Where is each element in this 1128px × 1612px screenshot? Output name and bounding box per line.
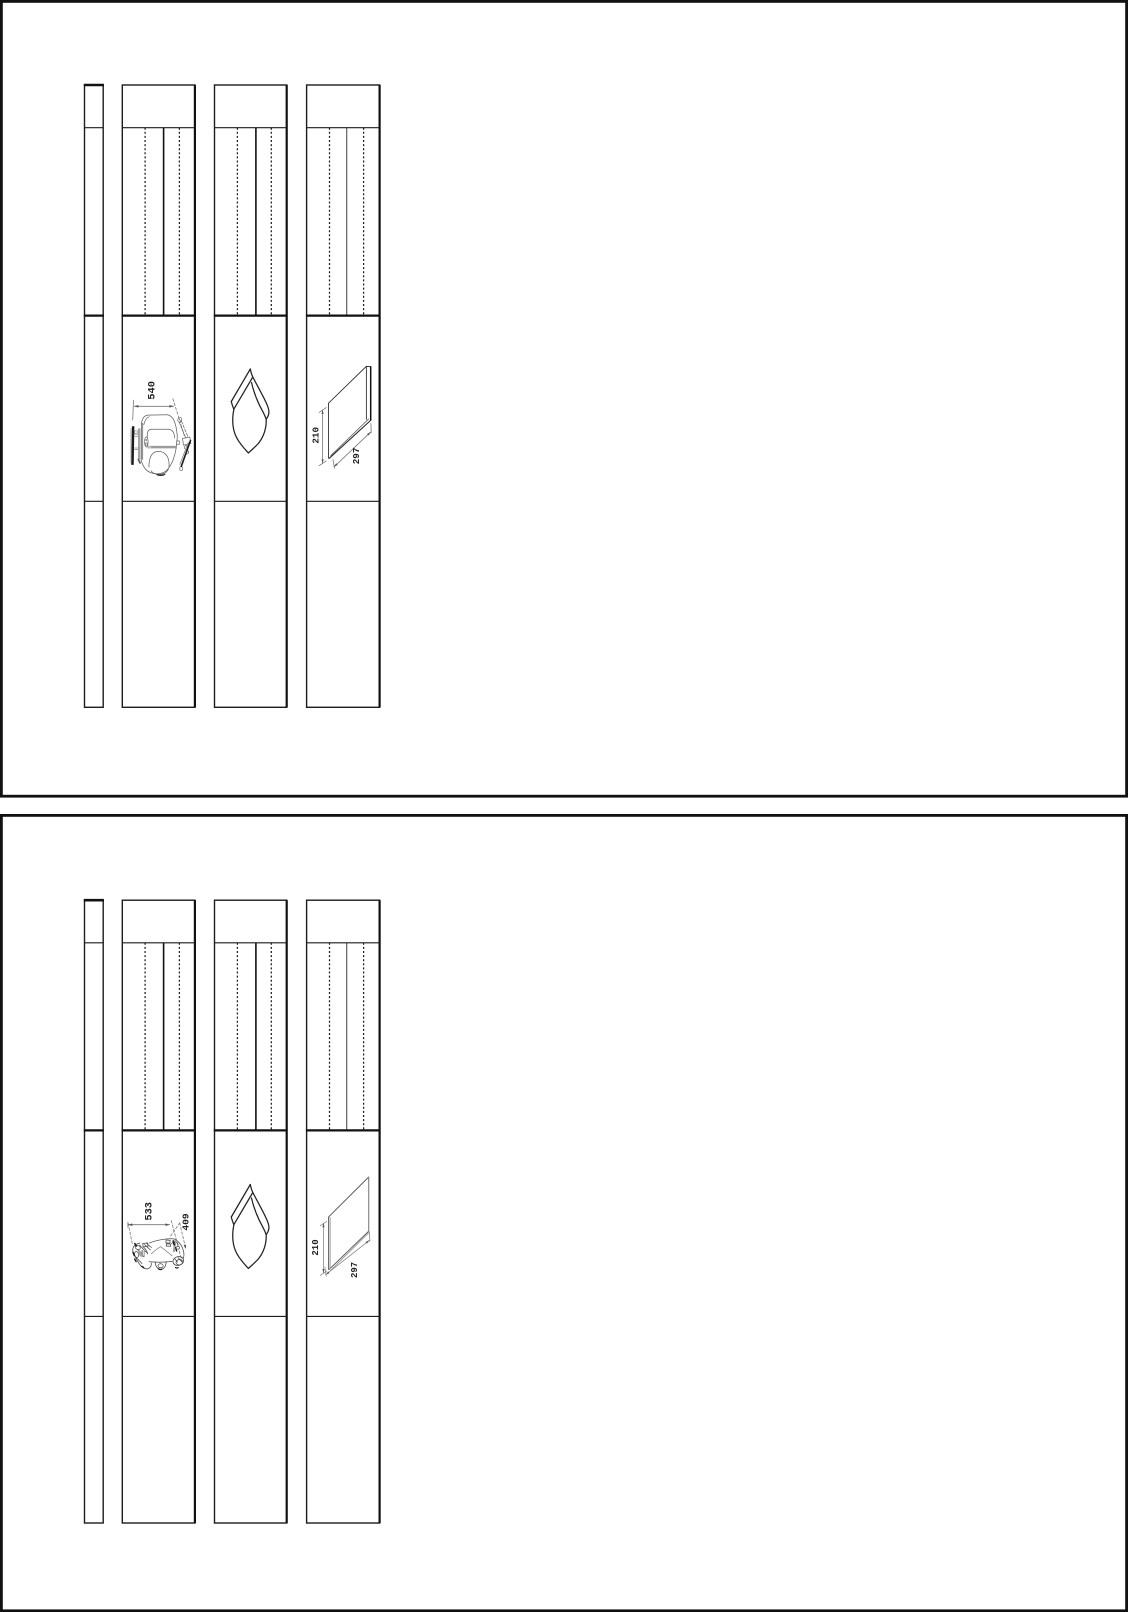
- svg-text:297: 297: [351, 448, 362, 465]
- svg-text:210: 210: [311, 1239, 321, 1255]
- svg-text:409: 409: [180, 1213, 191, 1231]
- svg-text:540: 540: [146, 381, 158, 400]
- svg-text:210: 210: [310, 427, 321, 444]
- svg-text:533: 533: [144, 1202, 156, 1221]
- svg-text:297: 297: [350, 1262, 360, 1278]
